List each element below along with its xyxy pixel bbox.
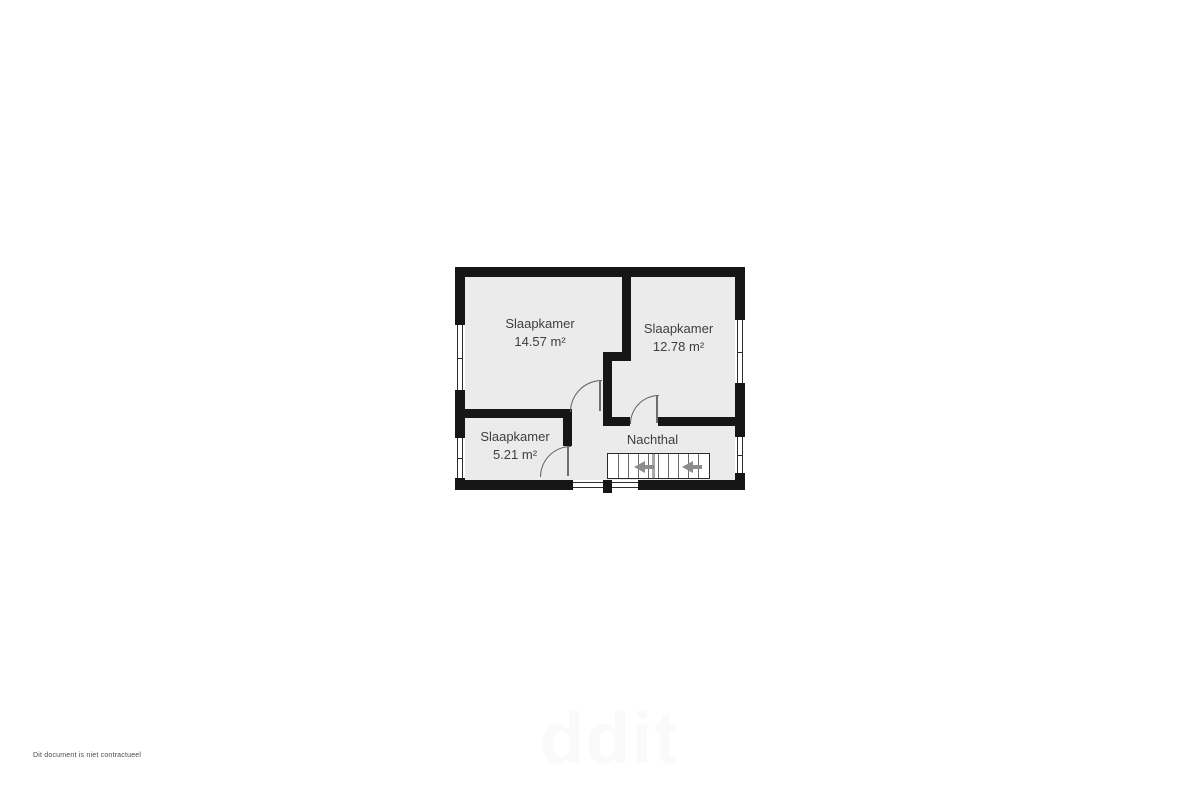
room-label-slaapkamer-2: Slaapkamer 12.78 m² xyxy=(612,320,745,356)
room-name: Nachthal xyxy=(595,431,710,449)
page: Slaapkamer 14.57 m² Slaapkamer 12.78 m² … xyxy=(0,0,1200,800)
disclaimer-text: Dit document is niet contractueel xyxy=(33,752,141,759)
door-leaf xyxy=(599,380,601,411)
window xyxy=(455,325,465,390)
wall-left-segment xyxy=(455,267,465,325)
wall-hall-north-left xyxy=(603,417,630,426)
wall-room3-north xyxy=(465,409,568,418)
room-area: 5.21 m² xyxy=(460,446,570,464)
room-label-slaapkamer-3: Slaapkamer 5.21 m² xyxy=(460,428,570,464)
floor-plan: Slaapkamer 14.57 m² Slaapkamer 12.78 m² … xyxy=(455,267,745,490)
wall-hall-north-right xyxy=(658,417,745,426)
room-label-slaapkamer-1: Slaapkamer 14.57 m² xyxy=(465,315,615,351)
room-name: Slaapkamer xyxy=(460,428,570,446)
wall-bottom-post xyxy=(603,480,612,493)
watermark: ddit xyxy=(540,698,760,780)
stair-direction-arrow-icon xyxy=(634,461,654,473)
wall-right-segment xyxy=(735,383,745,437)
room-label-nachthal: Nachthal xyxy=(595,431,710,449)
door-leaf xyxy=(656,395,658,423)
wall-bottom-segment xyxy=(638,480,745,490)
stair-direction-arrow-icon xyxy=(682,461,702,473)
room-name: Slaapkamer xyxy=(465,315,615,333)
wall-top xyxy=(455,267,745,277)
wall-right-segment xyxy=(735,267,745,320)
room-area: 14.57 m² xyxy=(465,333,615,351)
room-area: 12.78 m² xyxy=(612,338,745,356)
wall-divider-lower xyxy=(603,352,612,426)
window xyxy=(573,480,603,490)
window xyxy=(612,480,638,490)
room-name: Slaapkamer xyxy=(612,320,745,338)
window xyxy=(735,437,745,473)
wall-bottom-segment xyxy=(455,480,573,490)
staircase xyxy=(607,453,710,479)
